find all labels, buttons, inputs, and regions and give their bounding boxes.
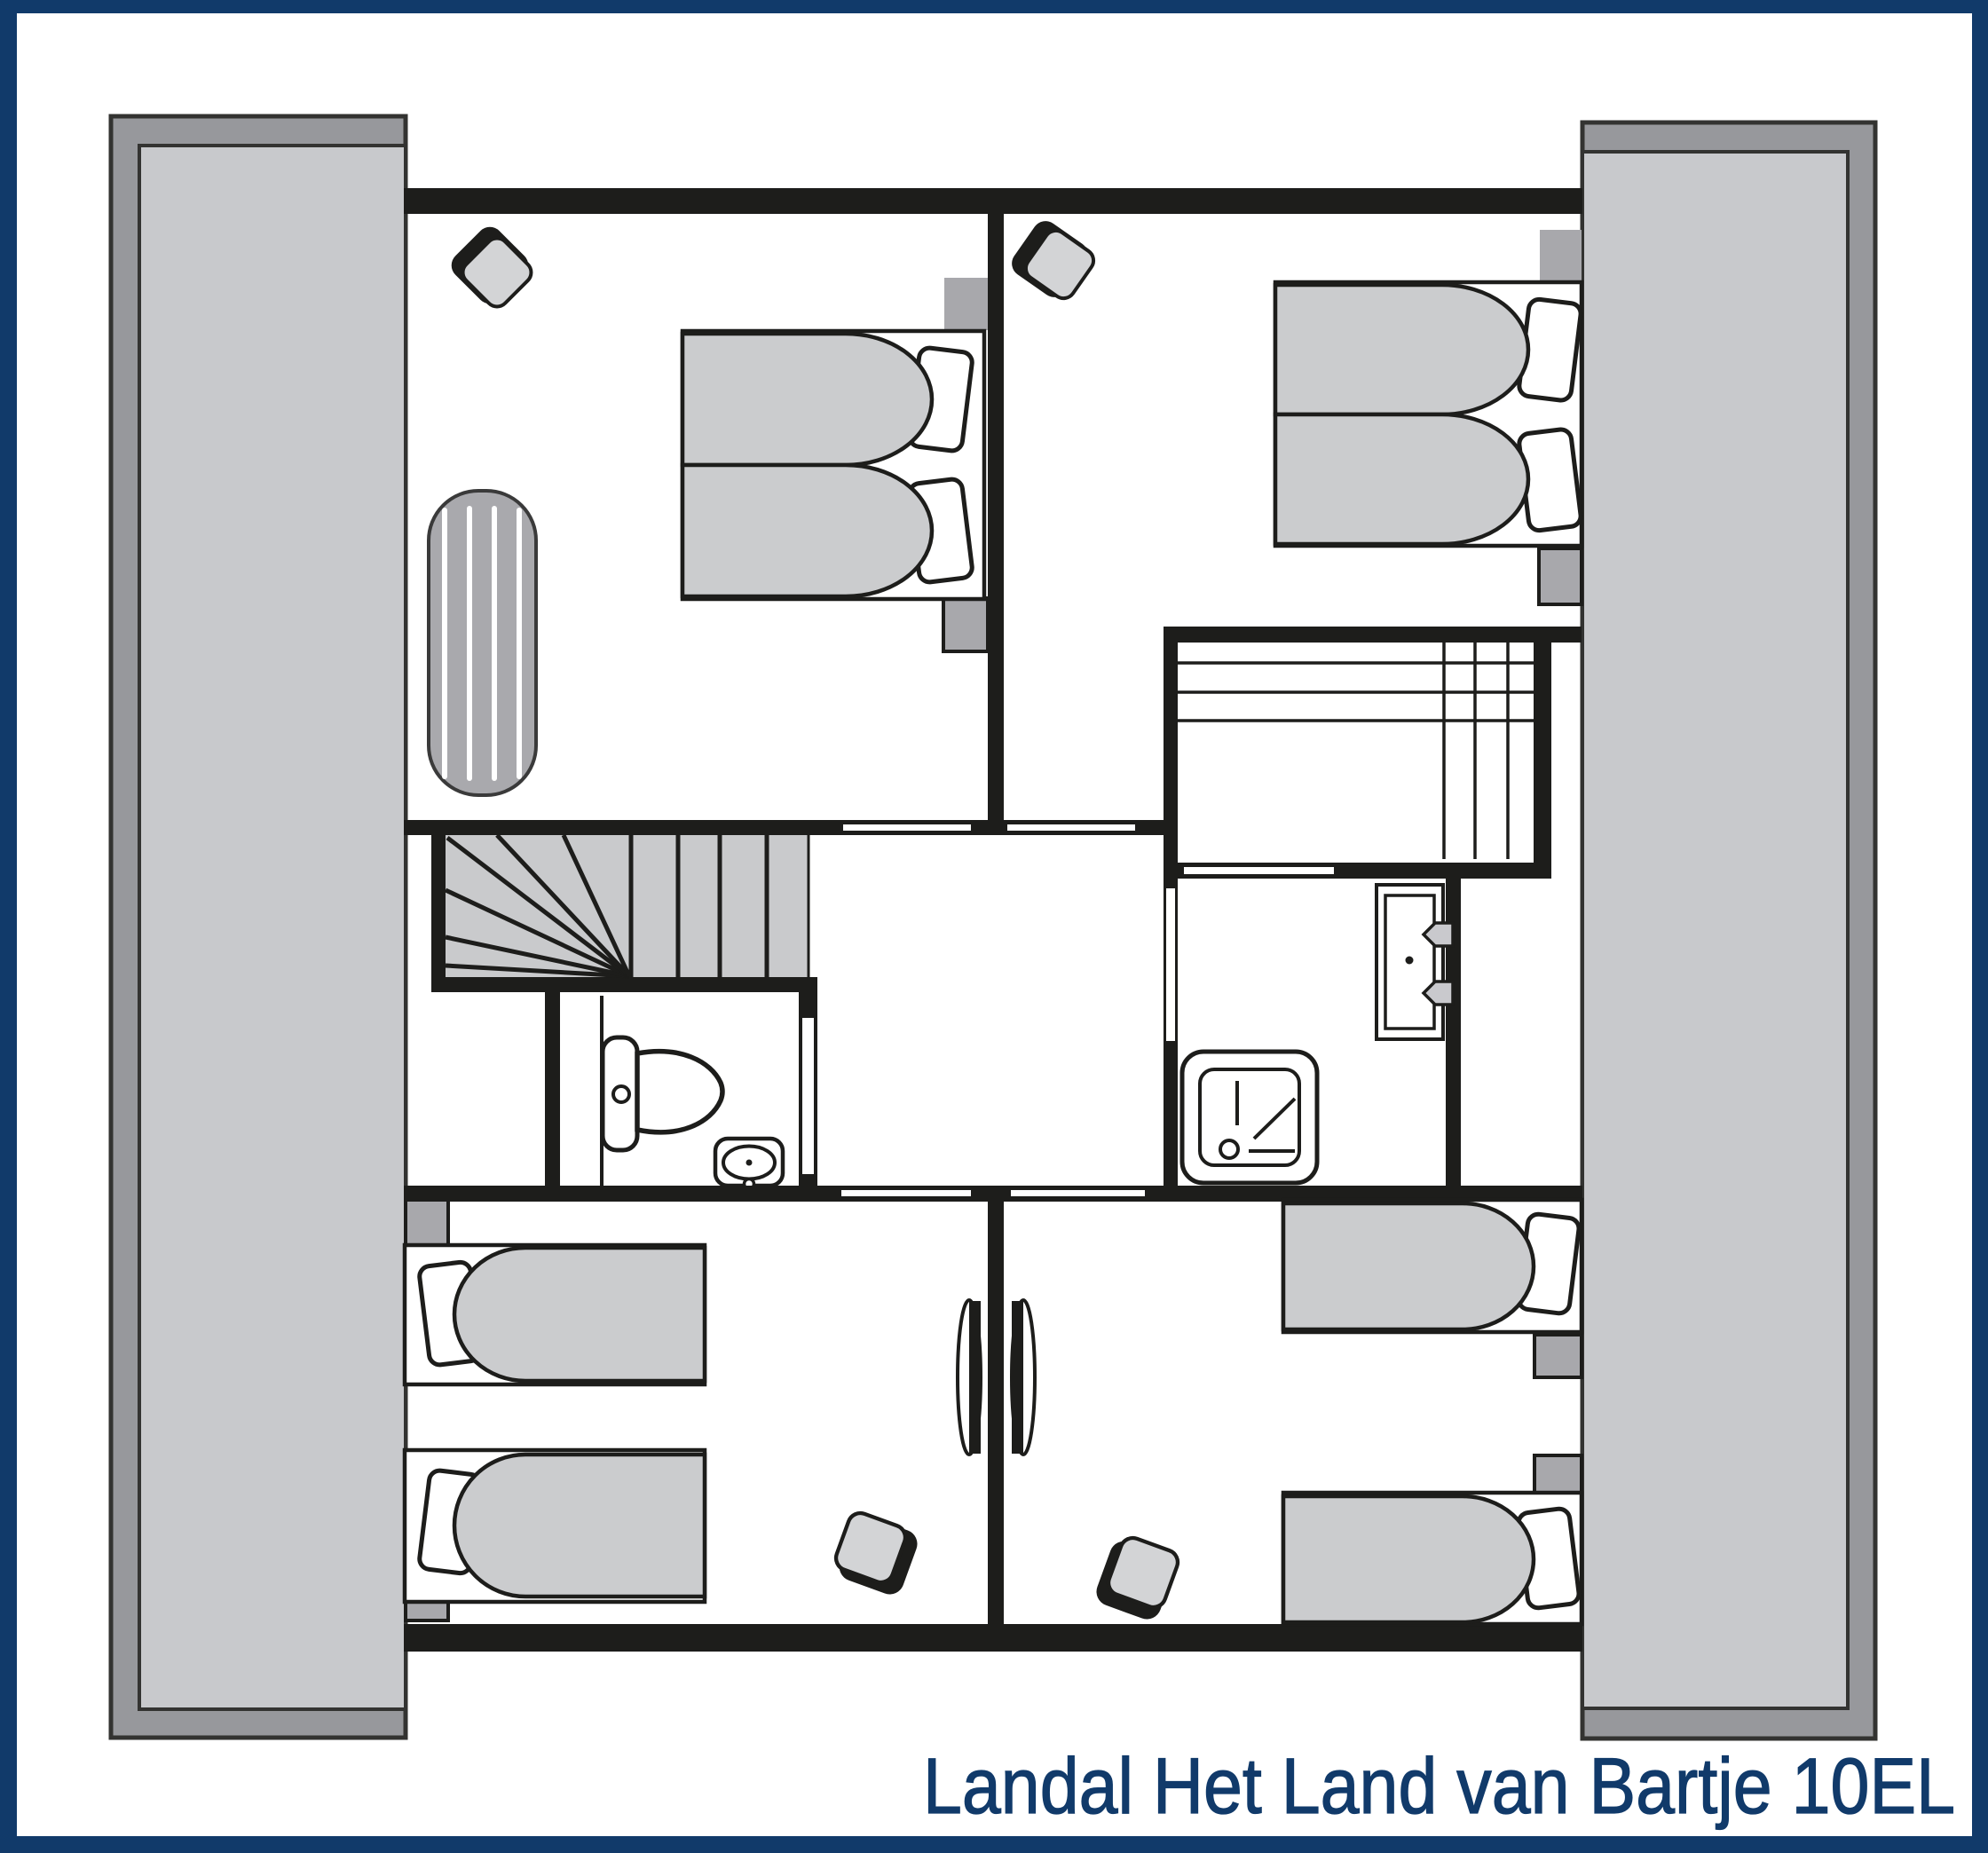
svg-text:Landal Het Land van Bartje 10E: Landal Het Land van Bartje 10EL (923, 1741, 1955, 1830)
